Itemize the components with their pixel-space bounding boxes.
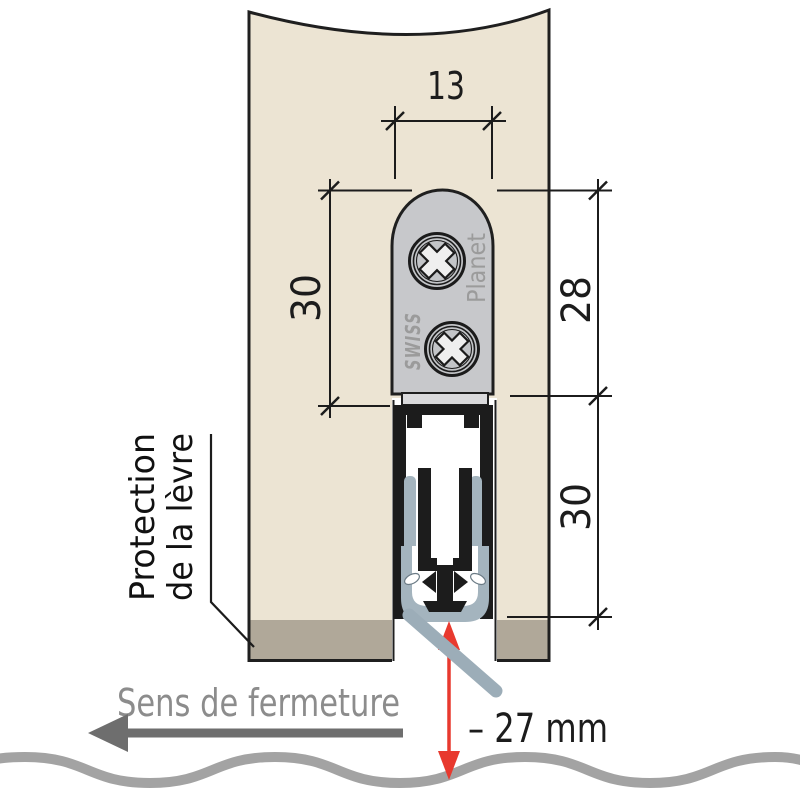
carrier-slot xyxy=(437,558,453,565)
carrier-wall-left xyxy=(418,468,431,563)
door-bottom-band-left xyxy=(249,620,392,662)
profile-top-bar xyxy=(393,405,493,415)
dimension-left-height: 30 xyxy=(284,274,330,322)
lip-protection-line1: Protection xyxy=(123,433,163,601)
profile-hook-left xyxy=(407,415,422,428)
lip-protection-line2: de la lèvre xyxy=(161,433,201,601)
brand-planet-label: Planet xyxy=(462,233,491,303)
carrier-foot xyxy=(423,601,467,612)
dimension-right-lower: 30 xyxy=(554,483,600,531)
profile-hook-right xyxy=(464,415,479,428)
lip-protection-label: Protection de la lèvre xyxy=(123,433,201,601)
screw-top xyxy=(410,234,465,289)
closing-direction-label: Sens de fermeture xyxy=(117,681,400,725)
screw-bottom xyxy=(426,323,479,376)
dimension-top-width: 13 xyxy=(427,64,465,108)
carrier-stem xyxy=(437,565,453,603)
door-seal-cross-section-diagram: SWISS Planet xyxy=(0,0,800,800)
carrier-wall-right xyxy=(459,468,472,563)
mounting-plate xyxy=(402,393,488,405)
floor-clearance-value: – 27 mm xyxy=(468,706,608,752)
door-bottom-band-right xyxy=(497,620,549,662)
dimension-right-upper: 28 xyxy=(554,276,600,324)
brand-swiss-label: SWISS xyxy=(401,312,425,370)
